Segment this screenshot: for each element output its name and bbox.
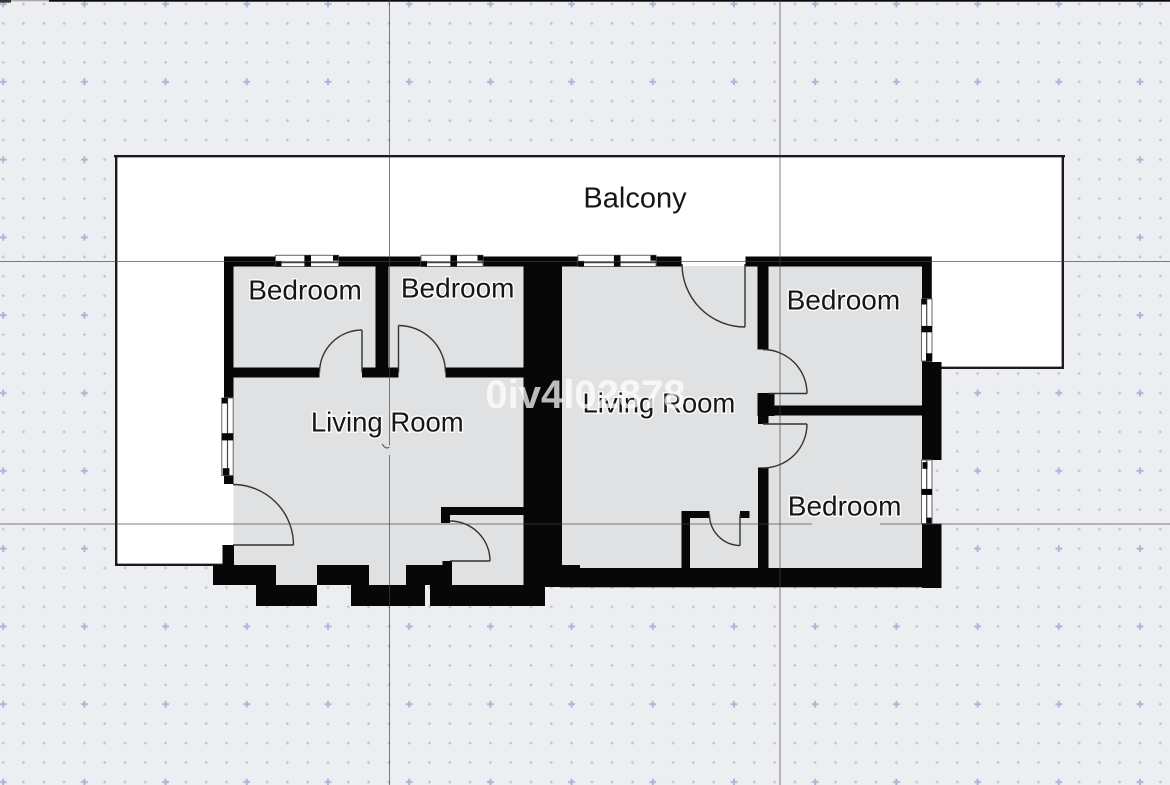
svg-text:Living Room: Living Room bbox=[311, 407, 464, 438]
svg-text:Balcony: Balcony bbox=[583, 183, 687, 215]
svg-text:Bedroom: Bedroom bbox=[248, 274, 362, 305]
svg-text:Bedroom: Bedroom bbox=[788, 491, 902, 522]
svg-text:Bedroom: Bedroom bbox=[787, 284, 901, 315]
svg-text:0iv4l02878: 0iv4l02878 bbox=[485, 373, 685, 417]
svg-text:Bedroom: Bedroom bbox=[401, 273, 515, 304]
